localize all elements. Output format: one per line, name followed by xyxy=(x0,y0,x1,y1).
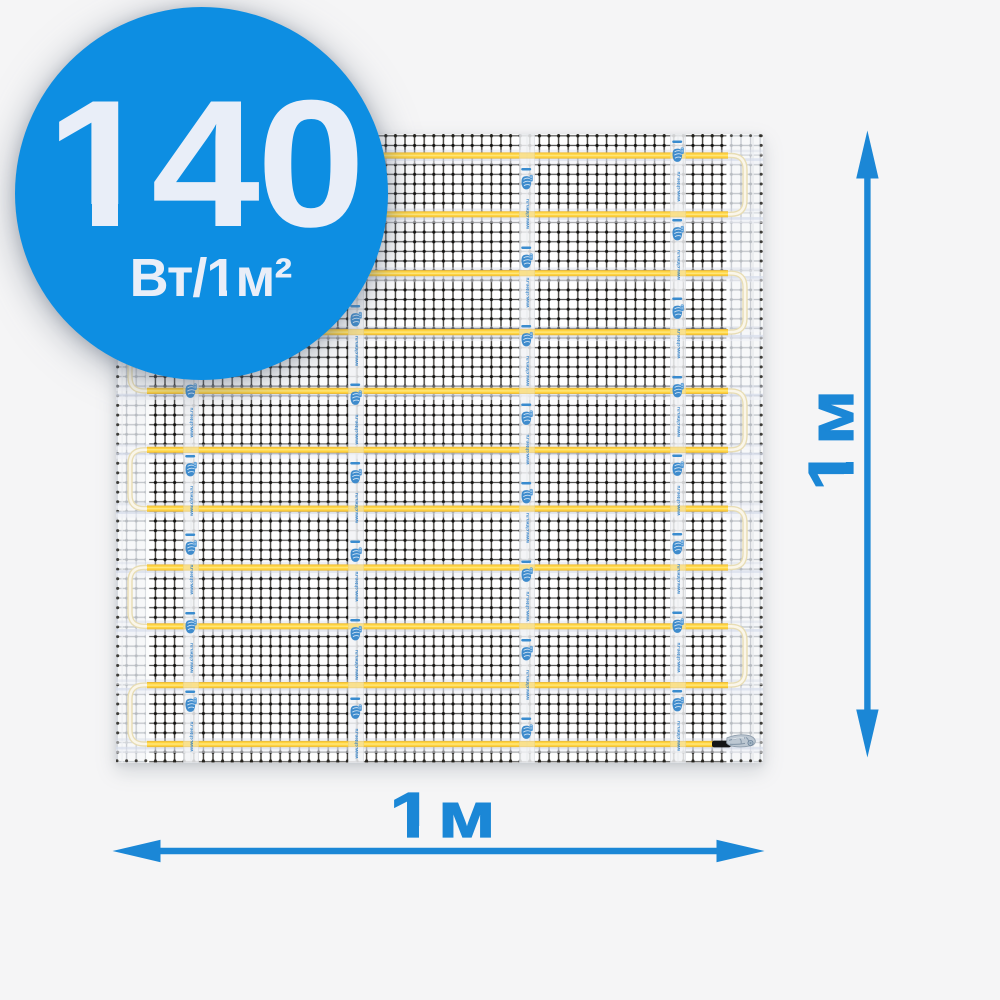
svg-text:www.chten.ru: www.chten.ru xyxy=(676,250,681,281)
svg-text:www.chten.ru: www.chten.ru xyxy=(354,650,359,681)
svg-text:www.chten.ru: www.chten.ru xyxy=(525,356,530,387)
svg-text:www.chten.ru: www.chten.ru xyxy=(525,277,530,308)
svg-text:www.chten.ru: www.chten.ru xyxy=(189,721,194,752)
svg-text:www.chten.ru: www.chten.ru xyxy=(354,336,359,367)
svg-text:www.chten.ru: www.chten.ru xyxy=(676,171,681,202)
svg-text:www.chten.ru: www.chten.ru xyxy=(676,564,681,595)
svg-text:www.chten.ru: www.chten.ru xyxy=(189,486,194,517)
svg-text:www.chten.ru: www.chten.ru xyxy=(354,414,359,445)
svg-text:www.chten.ru: www.chten.ru xyxy=(676,407,681,438)
svg-text:www.chten.ru: www.chten.ru xyxy=(354,728,359,759)
svg-text:www.chten.ru: www.chten.ru xyxy=(525,591,530,622)
svg-text:www.chten.ru: www.chten.ru xyxy=(189,643,194,674)
svg-text:www.chten.ru: www.chten.ru xyxy=(676,328,681,359)
svg-text:www.chten.ru: www.chten.ru xyxy=(189,564,194,595)
svg-text:www.chten.ru: www.chten.ru xyxy=(525,434,530,465)
svg-text:www.chten.ru: www.chten.ru xyxy=(525,199,530,230)
svg-text:www.chten.ru: www.chten.ru xyxy=(676,485,681,516)
svg-text:www.chten.ru: www.chten.ru xyxy=(354,493,359,524)
svg-text:www.chten.ru: www.chten.ru xyxy=(525,670,530,701)
svg-text:www.chten.ru: www.chten.ru xyxy=(676,642,681,673)
svg-text:www.chten.ru: www.chten.ru xyxy=(525,513,530,544)
svg-text:www.chten.ru: www.chten.ru xyxy=(354,571,359,602)
svg-text:www.chten.ru: www.chten.ru xyxy=(676,721,681,752)
svg-text:www.chten.ru: www.chten.ru xyxy=(189,407,194,438)
